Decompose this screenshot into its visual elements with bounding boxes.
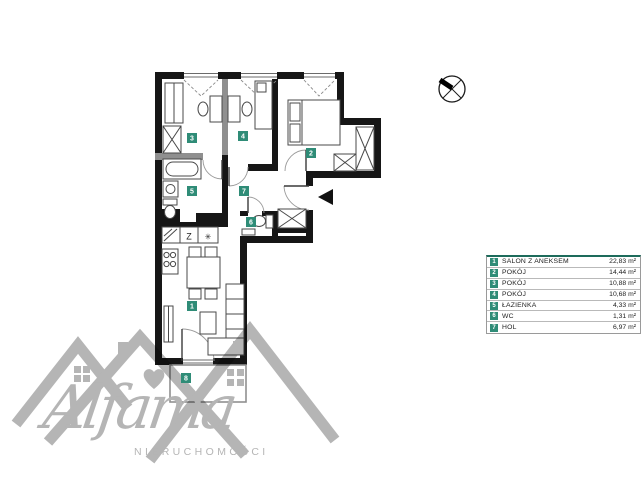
badge-pokoj-right: 2	[309, 151, 313, 158]
legend-room-area: 4,33 m²	[613, 302, 636, 309]
badge-pokoj-mid: 4	[241, 134, 245, 141]
legend-room-label: HOL	[502, 324, 613, 331]
legend-room-number: 2	[490, 269, 498, 277]
legend-row: 1 SALON Z ANEKSEM 22,83 m²	[487, 257, 640, 268]
legend-room-area: 1,31 m²	[613, 313, 636, 320]
legend-room-area: 22,83 m²	[609, 258, 636, 265]
legend-room-number: 1	[490, 258, 498, 266]
badge-hol: 7	[242, 189, 246, 196]
badge-salon: 1	[190, 304, 194, 311]
legend-row: 3 POKÓJ 10,88 m²	[487, 279, 640, 290]
floorplan-page: 1 2 3 4 5 6 7	[0, 0, 643, 500]
legend-room-number: 6	[490, 312, 498, 320]
kitchen-fridge-symbol: ✳	[205, 233, 212, 242]
room-legend-table: 1 SALON Z ANEKSEM 22,83 m² 2 POKÓJ 14,44…	[486, 255, 641, 334]
brand-logo-text: Alfama	[40, 378, 238, 438]
legend-room-number: 4	[490, 291, 498, 299]
legend-room-area: 10,88 m²	[609, 280, 636, 287]
legend-row: 6 WC 1,31 m²	[487, 311, 640, 322]
legend-room-label: POKÓJ	[502, 280, 609, 287]
north-indicator-icon	[439, 76, 465, 102]
legend-room-label: ŁAZIENKA	[502, 302, 613, 309]
legend-row: 2 POKÓJ 14,44 m²	[487, 268, 640, 279]
legend-room-area: 10,68 m²	[609, 291, 636, 298]
legend-room-number: 7	[490, 324, 498, 332]
legend-room-label: POKÓJ	[502, 269, 609, 276]
legend-row: 4 POKÓJ 10,68 m²	[487, 290, 640, 301]
legend-room-number: 5	[490, 302, 498, 310]
badge-lazienka: 5	[190, 189, 194, 196]
legend-row: 7 HOL 6,97 m²	[487, 322, 640, 333]
badge-wc: 6	[249, 220, 253, 227]
brand-logo-subtitle: NIERUCHOMOŚCI	[134, 446, 269, 458]
legend-row: 5 ŁAZIENKA 4,33 m²	[487, 301, 640, 312]
kitchen-sink-label: Z	[186, 232, 192, 242]
legend-room-area: 6,97 m²	[613, 324, 636, 331]
legend-room-area: 14,44 m²	[609, 269, 636, 276]
badge-pokoj-left: 3	[190, 136, 194, 143]
entrance-arrow-icon	[318, 189, 333, 205]
legend-room-number: 3	[490, 280, 498, 288]
legend-room-label: WC	[502, 313, 613, 320]
legend-room-label: POKÓJ	[502, 291, 609, 298]
legend-room-label: SALON Z ANEKSEM	[502, 258, 609, 265]
